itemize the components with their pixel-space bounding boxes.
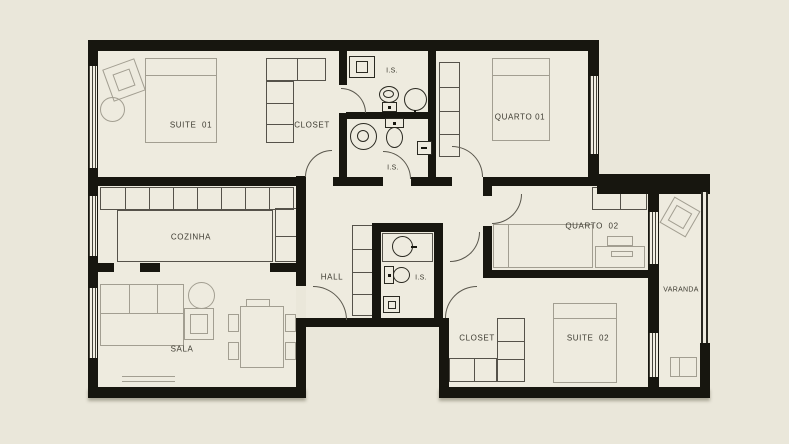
wall-outer-top xyxy=(88,40,599,51)
sink-basin xyxy=(356,61,368,73)
sofa-seat-line xyxy=(101,313,183,314)
shower-inner xyxy=(388,301,396,309)
shelf-divider xyxy=(440,134,459,135)
wall-mid-horizontal xyxy=(411,177,452,186)
window-suite-01 xyxy=(89,66,97,168)
quarto-01-shelf xyxy=(439,62,460,157)
closet-01-shelf-column xyxy=(266,81,294,143)
varanda-railing xyxy=(701,192,708,343)
wall-closet-bath xyxy=(339,51,347,85)
counter-divider xyxy=(221,188,222,209)
counter-divider xyxy=(269,188,270,209)
square-side-table xyxy=(184,308,214,340)
basin-tap xyxy=(411,246,417,248)
bed-pillow-line xyxy=(493,75,549,76)
dining-chair xyxy=(228,342,239,360)
shelf-divider xyxy=(267,103,293,104)
wall-cozinha-bottom xyxy=(140,263,160,272)
bench-line xyxy=(679,358,680,376)
closet-01-shelf-top xyxy=(266,58,326,81)
toilet-base xyxy=(382,102,397,112)
wall-hall-left xyxy=(296,176,306,286)
round-basin-icon xyxy=(350,123,377,150)
round-basin-icon xyxy=(392,236,413,257)
square-table-inner xyxy=(190,314,208,334)
counter-divider xyxy=(197,188,198,209)
wall-closet-bath xyxy=(339,113,347,177)
basin-inner xyxy=(357,130,369,142)
room-label-hall: HALL xyxy=(321,273,343,282)
toilet-dot xyxy=(388,274,391,277)
sofa-cushion-line xyxy=(129,285,130,313)
wall-outer-bottom-right xyxy=(439,387,710,398)
room-label-is-lower: I.S. xyxy=(387,165,399,172)
closet-02-shelf-row xyxy=(449,358,497,382)
shelf-divider xyxy=(498,359,524,360)
wall-box xyxy=(417,141,432,155)
room-label-varanda: VARANDA xyxy=(663,287,698,294)
shelf-divider xyxy=(440,111,459,112)
room-label-suite-01: SUITE 01 xyxy=(170,121,212,130)
wall-mid-horizontal xyxy=(333,177,383,186)
counter-divider xyxy=(173,188,174,209)
wall-bath-quarto-01 xyxy=(428,51,436,177)
sofa-cushion-line xyxy=(157,285,158,313)
wall-closet-02-left xyxy=(439,318,449,398)
side-table-suite-01 xyxy=(100,97,125,122)
desk-quarto-02 xyxy=(595,246,645,268)
toilet-icon xyxy=(393,267,410,283)
rug xyxy=(122,376,175,382)
bed-quarto-02 xyxy=(493,224,593,268)
bed-suite-01 xyxy=(145,58,217,143)
counter-divider xyxy=(149,188,150,209)
closet-02-shelf-column xyxy=(497,318,525,382)
counter-divider xyxy=(245,188,246,209)
desk-object xyxy=(611,251,633,257)
wall-cozinha-bottom xyxy=(270,263,296,272)
dining-chair xyxy=(246,299,270,307)
toilet-icon xyxy=(386,127,403,148)
dining-table xyxy=(240,306,284,368)
bed-pillow-line xyxy=(146,75,216,76)
wall-is-hall-left xyxy=(372,223,381,318)
room-label-is-upper: I.S. xyxy=(386,68,398,75)
kitchen-counter xyxy=(100,187,294,210)
window-quarto-02-varanda xyxy=(649,212,658,264)
room-label-is-hall: I.S. xyxy=(415,275,427,282)
room-label-sala: SALA xyxy=(171,345,194,354)
shelf-divider xyxy=(267,124,293,125)
window-suite-02-varanda xyxy=(649,333,658,377)
dining-chair xyxy=(285,314,296,332)
window-cozinha xyxy=(89,196,97,256)
round-side-table xyxy=(188,282,215,309)
desk-chair-quarto-02 xyxy=(607,236,633,246)
sink-icon xyxy=(349,56,375,78)
wall-cozinha-bottom xyxy=(98,263,114,272)
bed-suite-02 xyxy=(553,303,617,383)
bed-pillow-line xyxy=(554,318,616,319)
hall-shelf xyxy=(352,225,373,316)
window-sala xyxy=(89,288,97,358)
dining-chair xyxy=(228,314,239,332)
wall-varanda-top xyxy=(597,174,710,194)
varanda-bench xyxy=(670,357,697,377)
shelf-divider xyxy=(353,272,372,273)
wall-is-hall-top xyxy=(372,223,443,232)
room-label-closet-suite-01: CLOSET xyxy=(294,121,330,130)
shelf-divider xyxy=(498,341,524,342)
wall-outer-bottom-left xyxy=(88,387,306,398)
room-label-closet-suite-02: CLOSET xyxy=(459,334,495,343)
wall-is-hall-right xyxy=(434,223,443,318)
sofa xyxy=(100,284,184,346)
shelf-divider xyxy=(353,294,372,295)
shelf-divider xyxy=(474,359,475,381)
basin-stem xyxy=(414,110,416,116)
room-label-suite-02: SUITE 02 xyxy=(567,334,609,343)
shower-box xyxy=(383,296,400,313)
wall-quarto-02-left xyxy=(483,186,492,196)
toilet-dot xyxy=(388,106,391,109)
wall-sala-right xyxy=(296,320,306,398)
shelf-divider xyxy=(353,249,372,250)
round-basin-icon xyxy=(404,88,427,111)
toilet-bowl xyxy=(383,90,394,98)
floor-plan: SUITE 01 CLOSET I.S. I.S. QUARTO 01 COZI… xyxy=(0,0,789,444)
toilet-icon xyxy=(379,86,399,103)
wall-quarto-02-bottom xyxy=(483,270,648,278)
toilet-dot xyxy=(393,122,396,125)
counter-divider xyxy=(125,188,126,209)
shelf-divider xyxy=(297,59,298,80)
shelf-divider xyxy=(440,87,459,88)
room-label-quarto-01: QUARTO 01 xyxy=(495,113,545,122)
wall-mid-horizontal xyxy=(483,177,588,186)
room-label-quarto-02: QUARTO 02 xyxy=(565,222,618,231)
wall-varanda-post xyxy=(700,343,710,395)
window-quarto-01 xyxy=(590,76,598,154)
wall-mid-horizontal xyxy=(98,177,296,186)
dining-chair xyxy=(285,342,296,360)
bed-quarto-01 xyxy=(492,58,550,141)
box-mark xyxy=(421,147,427,149)
room-label-cozinha: COZINHA xyxy=(171,233,211,242)
bed-pillow-line xyxy=(508,225,509,267)
